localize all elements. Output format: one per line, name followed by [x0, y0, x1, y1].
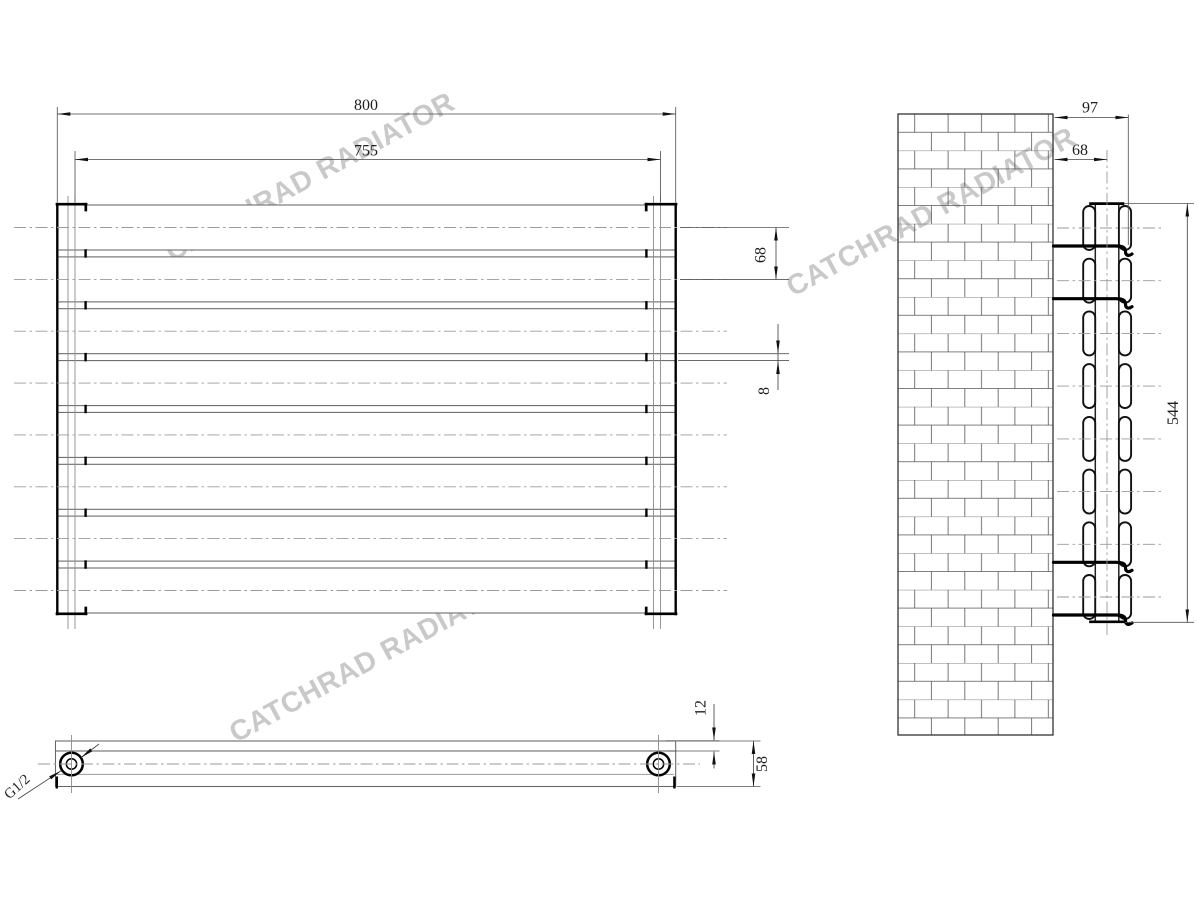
- drawing-page: CATCHRAD RADIATOR CATCHRAD RADIATOR CATC…: [0, 0, 1197, 900]
- bottom-view: 12 58 G1/2: [1, 700, 771, 803]
- side-view: 97 68 544: [898, 100, 1194, 736]
- bottom-panel-edge: [56, 741, 676, 751]
- bottom-body: [56, 751, 676, 787]
- radiator-panels: [57, 205, 675, 613]
- dim-panel-pitch: 68: [680, 228, 789, 280]
- dim-label-97: 97: [1082, 100, 1098, 117]
- brick-wall: [898, 114, 1053, 735]
- dim-label-800: 800: [354, 97, 378, 114]
- dim-height: 544: [1124, 204, 1194, 623]
- radiator-technical-drawing: CATCHRAD RADIATOR CATCHRAD RADIATOR CATC…: [0, 0, 1197, 900]
- dim-label-68-side: 68: [1072, 142, 1088, 159]
- dim-connection-spacing: 755: [75, 143, 661, 203]
- dim-label-544: 544: [1165, 401, 1182, 425]
- dim-label-68-front: 68: [753, 247, 770, 263]
- thread-label: G1/2: [1, 771, 33, 802]
- dim-label-8: 8: [756, 387, 773, 395]
- dim-label-58: 58: [754, 756, 771, 772]
- dim-label-755: 755: [354, 143, 378, 160]
- dim-panel-gap: 8: [678, 324, 789, 395]
- dim-label-12: 12: [693, 700, 710, 716]
- front-view: 800 755 68 8: [14, 97, 789, 629]
